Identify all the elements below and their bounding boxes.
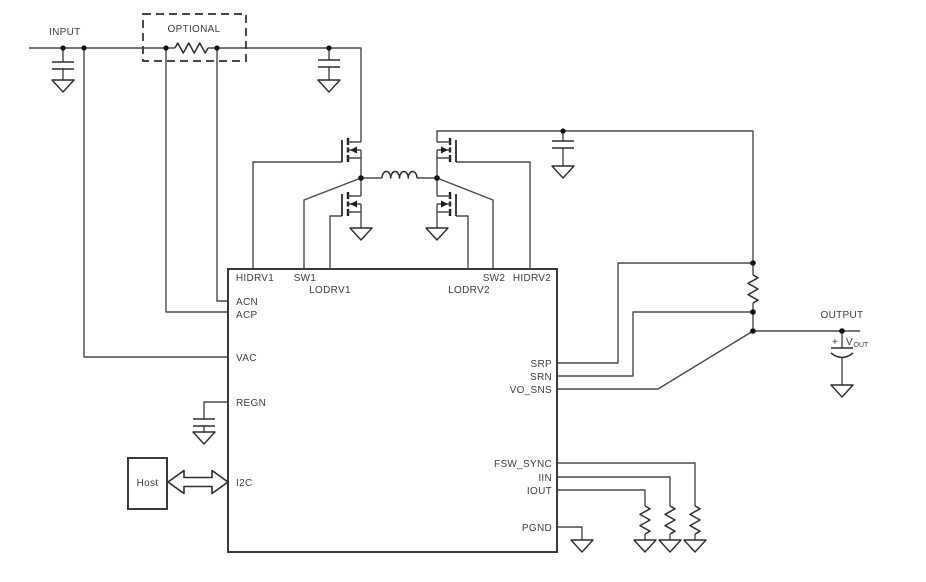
ground-icon: [684, 540, 706, 552]
pin-label-sw2: SW2: [483, 273, 506, 284]
vout-label-subscript: OUT: [854, 342, 870, 349]
wire-acn: [217, 48, 228, 301]
ground-icon: [634, 540, 656, 552]
pin-label-iout: IOUT: [527, 486, 552, 497]
wire-iout: [557, 490, 645, 506]
pin-label-hidrv1: HIDRV1: [236, 273, 274, 284]
ground-icon: [52, 80, 74, 92]
iout-pulldown-resistor: [634, 506, 656, 552]
mosfet-q3-highside-icon: [437, 138, 456, 178]
pgnd-ground-icon: [571, 540, 593, 552]
pin-label-i2c: I2C: [236, 478, 252, 489]
schematic-page: OPTIONAL: [0, 0, 926, 582]
optional-label: OPTIONAL: [168, 24, 221, 35]
pin-label-srp: SRP: [531, 359, 552, 370]
output-label: OUTPUT: [821, 310, 864, 321]
mosfet-q2-lowside-icon: [342, 178, 372, 240]
wire-pgnd: [557, 527, 582, 540]
pin-label-fsw-sync: FSW_SYNC: [494, 459, 552, 470]
input-capacitor: [52, 48, 74, 92]
vout-plus-sign: +: [832, 337, 838, 348]
pin-label-vac: VAC: [236, 353, 257, 364]
pin-label-sw1: SW1: [294, 273, 317, 284]
wire-iin: [557, 477, 670, 506]
optional-resistor: [175, 43, 208, 53]
ic-outline: [228, 269, 557, 552]
wire-srn: [557, 312, 753, 376]
ground-icon: [350, 228, 372, 240]
sense-resistor: [748, 263, 758, 312]
pin-label-lodrv1: LODRV1: [309, 285, 351, 296]
wire-lodrv2: [456, 216, 468, 269]
i2c-bidirectional-arrow-icon: [168, 471, 228, 494]
ground-icon: [426, 228, 448, 240]
wire-srp: [557, 263, 753, 363]
ground-icon: [831, 385, 853, 397]
wire-regn: [204, 402, 228, 419]
wire-sw2: [437, 178, 493, 269]
wire-hidrv1: [253, 162, 342, 269]
regn-capacitor: [193, 419, 215, 444]
ground-icon: [318, 80, 340, 92]
optional-section: OPTIONAL: [143, 14, 246, 61]
ground-icon: [659, 540, 681, 552]
pin-label-hidrv2: HIDRV2: [513, 273, 551, 284]
pin-label-iin: IIN: [538, 473, 552, 484]
ground-icon: [193, 432, 215, 444]
schematic-canvas: OPTIONAL: [0, 0, 926, 582]
pin-label-regn: REGN: [236, 398, 266, 409]
input-bypass-capacitor: [318, 48, 340, 92]
mosfet-q1-highside-icon: [342, 138, 361, 178]
wire-input-rail-right: [208, 48, 361, 142]
vout-capacitor: + V OUT: [831, 331, 869, 397]
wire-acp: [166, 48, 228, 312]
pin-label-pgnd: PGND: [522, 523, 552, 534]
wire-vac: [84, 48, 228, 357]
ground-icon: [552, 166, 574, 178]
wire-fsw-sync: [557, 463, 695, 506]
fsw-pulldown-resistor: [684, 506, 706, 552]
input-label: INPUT: [49, 27, 81, 38]
inductor-icon: [382, 172, 417, 178]
wire-sw1: [304, 178, 361, 269]
boost-bypass-capacitor: [552, 131, 574, 178]
host-label: Host: [137, 478, 159, 489]
pin-label-srn: SRN: [530, 372, 552, 383]
wire-lodrv1: [330, 216, 342, 269]
mosfet-q4-lowside-icon: [426, 178, 456, 240]
pin-label-lodrv2: LODRV2: [448, 285, 490, 296]
pin-label-acn: ACN: [236, 297, 258, 308]
host-section: Host: [128, 458, 228, 509]
wire-vo-sns: [557, 331, 753, 389]
optional-box: [143, 14, 246, 61]
ic-body: HIDRV1 SW1 LODRV1 LODRV2 SW2 HIDRV2 ACN …: [228, 269, 557, 552]
pin-label-vo-sns: VO_SNS: [510, 385, 552, 396]
iin-pulldown-resistor: [659, 506, 681, 552]
vout-label: V: [846, 337, 853, 348]
pin-label-acp: ACP: [236, 310, 257, 321]
